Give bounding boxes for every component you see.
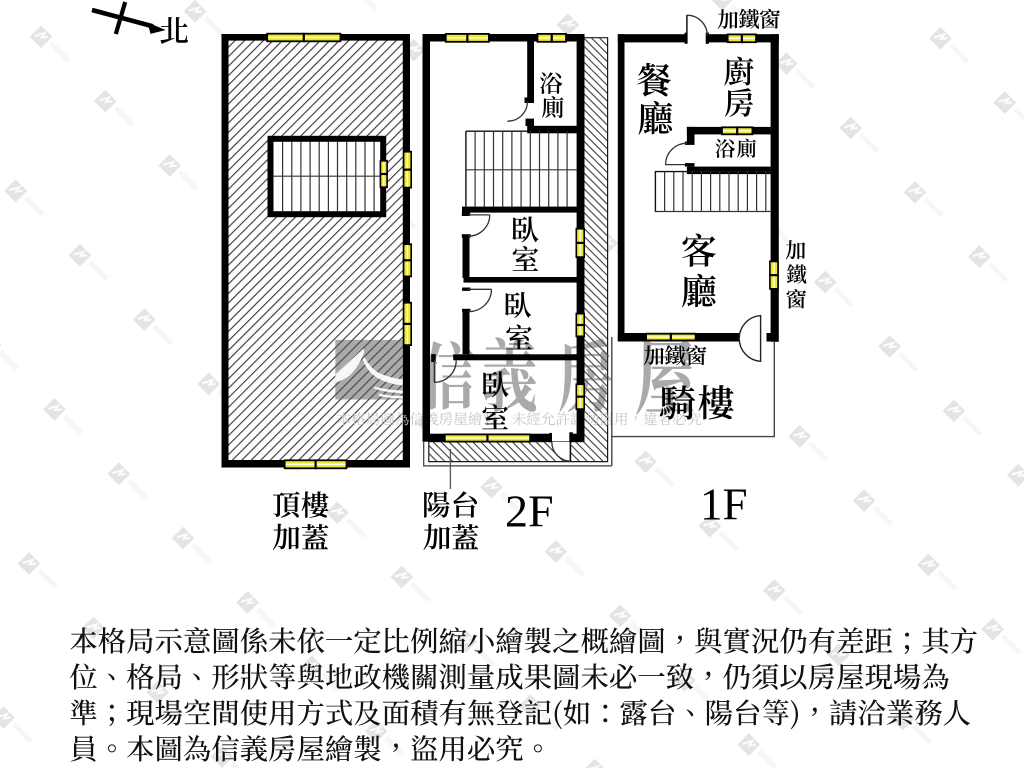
svg-text:2F: 2F xyxy=(505,486,554,537)
svg-text:1F: 1F xyxy=(700,479,748,529)
